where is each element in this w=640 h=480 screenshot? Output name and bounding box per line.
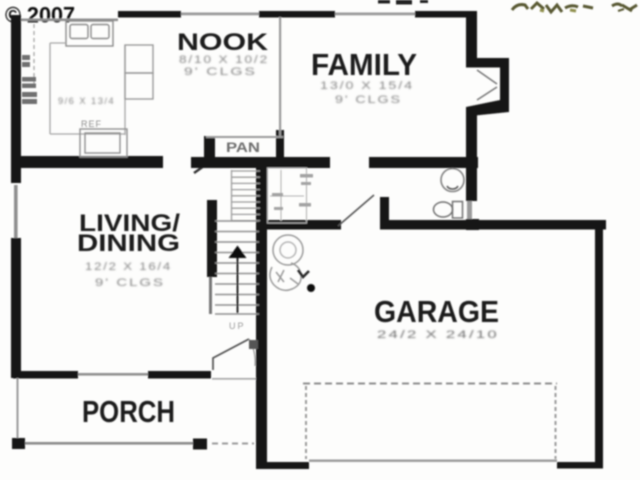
svg-text:13/0 X 15/4: 13/0 X 15/4 [320, 80, 414, 92]
svg-text:PAN: PAN [226, 140, 260, 155]
svg-text:PORCH: PORCH [82, 395, 175, 429]
svg-text:REF: REF [81, 119, 102, 129]
svg-text:12/2 X 16/4: 12/2 X 16/4 [85, 261, 172, 273]
svg-text:DINING: DINING [77, 231, 180, 257]
svg-text:GARAGE: GARAGE [374, 295, 499, 329]
svg-text:UP: UP [229, 321, 246, 331]
svg-text:9' CLGS: 9' CLGS [184, 66, 257, 78]
svg-text:8/10 X 10/2: 8/10 X 10/2 [179, 54, 269, 66]
svg-text:9/6 X 13/4: 9/6 X 13/4 [58, 96, 115, 107]
svg-text:9' CLGS: 9' CLGS [95, 277, 165, 289]
svg-text:9' CLGS: 9' CLGS [335, 94, 402, 106]
svg-text:FAMILY: FAMILY [311, 48, 417, 82]
svg-text:24/2 X 24/10: 24/2 X 24/10 [377, 329, 499, 341]
svg-text:NOOK: NOOK [177, 30, 268, 56]
